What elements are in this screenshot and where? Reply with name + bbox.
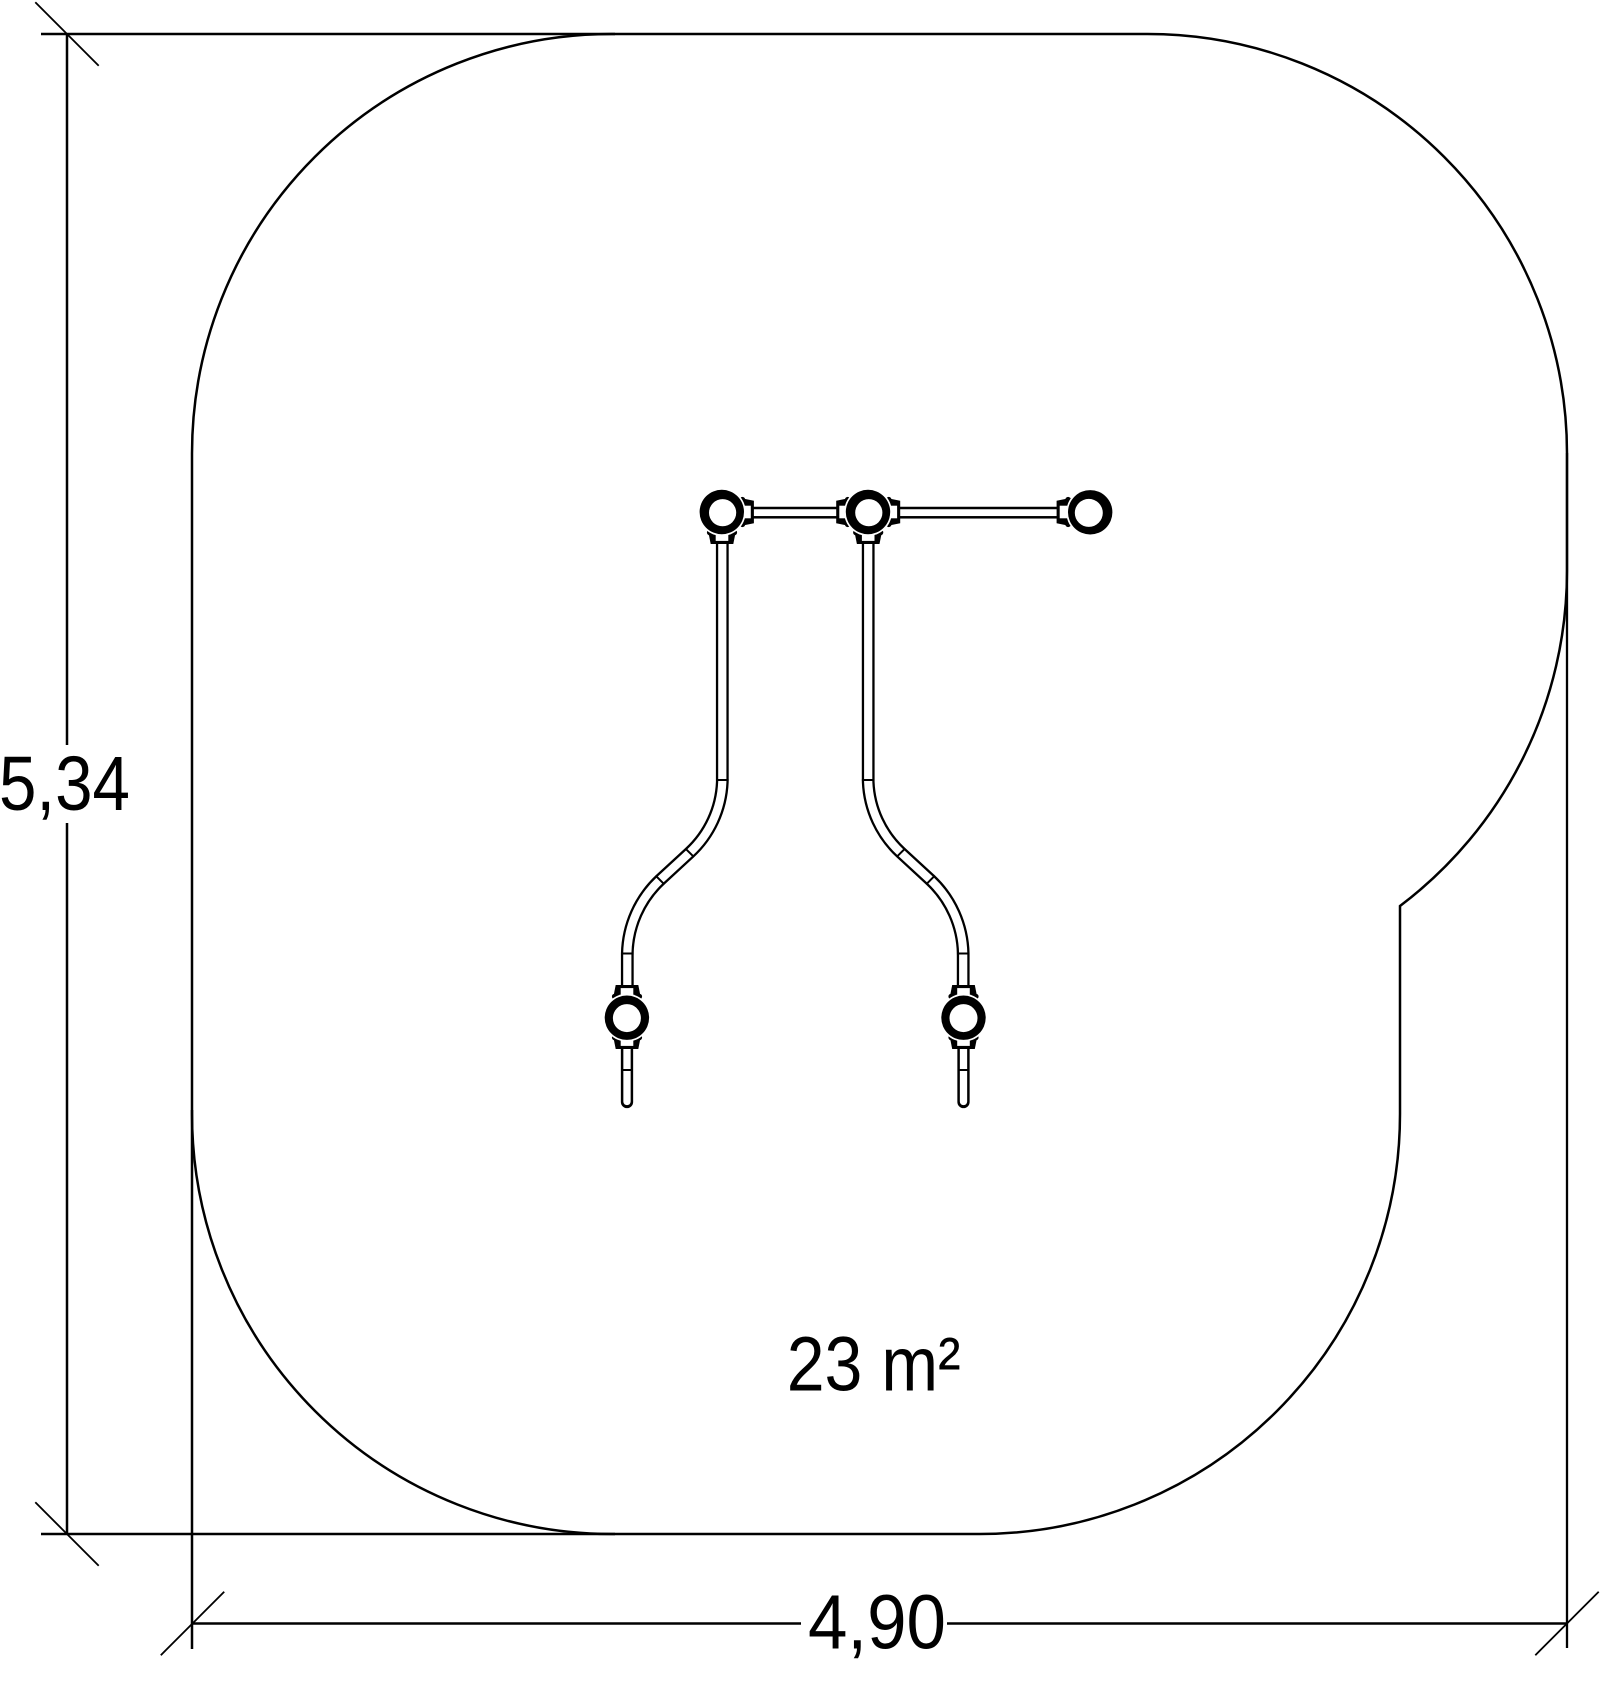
svg-text:23 m²: 23 m² <box>787 1322 961 1408</box>
svg-text:4,90: 4,90 <box>808 1579 946 1665</box>
svg-text:5,34: 5,34 <box>0 741 130 827</box>
